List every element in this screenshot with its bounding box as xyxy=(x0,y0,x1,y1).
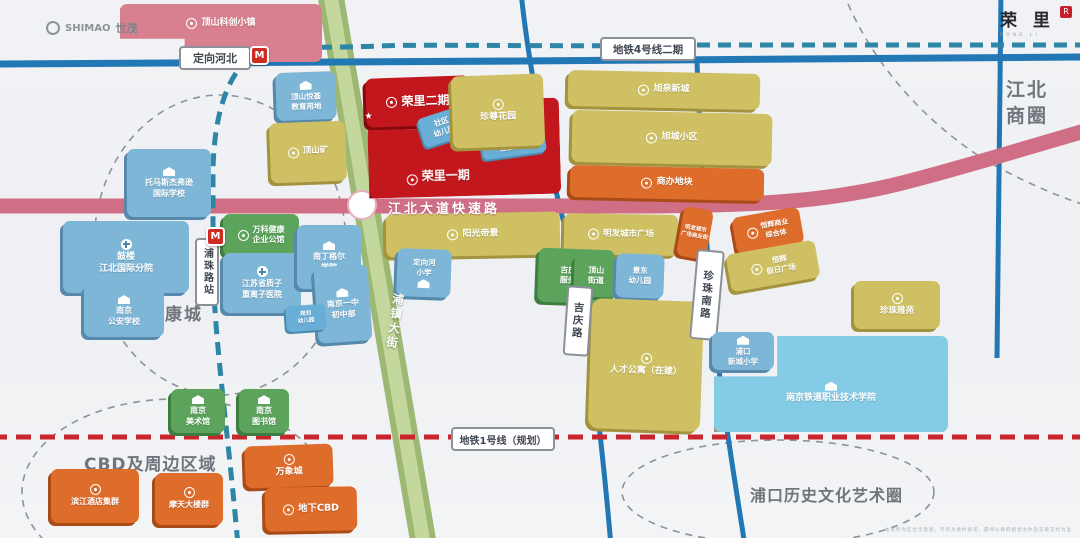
block-label: 明发城市 广场商业街 xyxy=(680,224,710,243)
block-xincheng: 旭泉新城 xyxy=(568,70,761,110)
block-label: 滨江酒店集群 xyxy=(71,497,119,507)
block-gulou-hospital-branch: 鼓楼 江北国际分院 xyxy=(63,221,189,293)
block-label: 南京 图书馆 xyxy=(252,406,276,427)
school-icon xyxy=(737,336,749,345)
block-label: 人才公寓（在建） xyxy=(610,364,682,378)
block-jingdong-kindergarten: 景东 幼儿园 xyxy=(615,253,665,299)
ring-icon xyxy=(588,228,599,239)
block-label: 景东 幼儿园 xyxy=(628,266,651,286)
block-label: 旭泉新城 xyxy=(653,84,689,96)
block-label: 定向河 小学 xyxy=(413,257,436,277)
ring-icon xyxy=(283,504,294,515)
block-label: 顶山悦荟 教育用地 xyxy=(291,91,322,112)
block-label: 恒辉 假日广场 xyxy=(764,252,797,276)
block-label: 顶山科创小镇 xyxy=(201,18,255,30)
hospital-icon xyxy=(121,239,132,250)
school-icon xyxy=(323,241,335,250)
ring-icon xyxy=(186,18,197,29)
metro-logo-icon: M xyxy=(250,46,269,65)
block-thomas-jefferson-school: 托马斯杰弗逊 国际学校 xyxy=(127,149,211,217)
block-pukou-xincheng-primary: 浦口 新城小学 xyxy=(712,332,774,370)
block-label: 明发城市广场 xyxy=(603,229,654,241)
east-road-line xyxy=(997,0,1001,358)
ring-icon xyxy=(386,97,397,108)
hospital-icon xyxy=(257,266,268,277)
school-icon xyxy=(163,167,175,176)
label-metro-line4: 地铁4号线二期 xyxy=(600,37,696,61)
block-label: 南京一中 初中部 xyxy=(327,298,360,321)
block-mixc: 万象城 xyxy=(244,443,333,488)
group-logo-icon xyxy=(46,21,60,35)
block-dingshan-mine: 顶山矿 xyxy=(269,121,347,184)
ring-icon xyxy=(746,227,759,240)
block-zhenzhu-yayuan: 珍珠雅苑 xyxy=(854,281,940,329)
block-library: 南京 图书馆 xyxy=(239,389,289,433)
ring-icon xyxy=(90,484,101,495)
metro-logo-icon: M xyxy=(206,227,225,246)
block-label: 南京铁道职业技术学院 xyxy=(786,393,876,405)
block-vanke-health-mansion: 万科健康 企业公馆 xyxy=(223,214,299,256)
block-label: 旭城小区 xyxy=(661,132,697,144)
block-label: 南京 美术馆 xyxy=(186,406,210,427)
disclaimer-text: 本资料为区位示意图，不作为要约承诺，最终以政府规划文件及实际交付为准 xyxy=(885,527,1072,533)
ring-icon xyxy=(283,453,294,464)
label-metro-line1: 地铁1号线（规划） xyxy=(451,427,555,451)
area-art-circle: 浦口历史文化艺术圈 xyxy=(750,482,903,506)
location-map: SHIMAO 世茂 荣 里 R RONG LI 健康城 江北 商圈 CBD及周边… xyxy=(0,0,1080,538)
school-icon xyxy=(825,382,837,391)
school-icon xyxy=(118,295,130,304)
block-zhenzun-garden: 珍尊花园 xyxy=(451,73,545,148)
block-label: 鼓楼 江北国际分院 xyxy=(99,252,153,275)
ring-icon xyxy=(238,230,249,241)
school-icon xyxy=(258,395,270,404)
area-jiangbei: 江北 商圈 xyxy=(1006,78,1048,129)
block-police-academy: 南京 公安学校 xyxy=(84,285,164,337)
block-label: 摩天大楼群 xyxy=(169,500,209,510)
river-line xyxy=(0,57,1080,64)
block-label: 南京 公安学校 xyxy=(108,306,140,327)
block-commercial-plot: 商办地块 xyxy=(570,165,765,201)
block-label: 荣里一期 xyxy=(422,168,470,185)
block-riverside-hotels: 滨江酒店集群 xyxy=(51,469,139,523)
block-label: 顶山矿 xyxy=(303,146,329,158)
label-jiangbei-ave: 江北大道快速路 xyxy=(388,198,500,217)
block-label: 商办地块 xyxy=(656,177,692,189)
project-logo-sub: RONG LI xyxy=(1000,33,1072,38)
block-label: 托马斯杰弗逊 国际学校 xyxy=(145,178,193,199)
ring-icon xyxy=(892,293,903,304)
block-label: 珍珠雅苑 xyxy=(880,306,914,317)
block-underground-cbd: 地下CBD xyxy=(265,486,358,532)
ring-icon xyxy=(492,98,503,109)
block-label: 地下CBD xyxy=(298,502,339,515)
shimao-logo-en: SHIMAO xyxy=(65,23,110,34)
developer-logos: SHIMAO 世茂 xyxy=(46,20,137,36)
star-icon: ★ xyxy=(364,112,372,124)
ring-icon xyxy=(288,147,299,158)
school-icon xyxy=(192,395,204,404)
block-label: 阳光帝景 xyxy=(462,228,498,240)
block-planned-kindergarten: 规划 幼儿园 xyxy=(285,304,327,333)
ring-icon xyxy=(646,132,657,143)
ring-icon xyxy=(407,174,418,185)
block-label: 荣里二期 xyxy=(401,93,450,110)
block-skyscrapers: 摩天大楼群 xyxy=(155,473,223,525)
station-dingxianghebei: 定向河北 xyxy=(179,46,251,70)
ring-icon xyxy=(447,229,458,240)
project-logo-cn: 荣 里 xyxy=(1000,6,1055,31)
block-label: 万科健康 企业公馆 xyxy=(253,225,285,246)
ring-icon xyxy=(641,352,652,363)
label-jiqing-road: 吉庆路 xyxy=(563,285,594,357)
block-label: 规划 幼儿园 xyxy=(297,310,314,325)
project-seal-icon: R xyxy=(1060,6,1072,18)
block-dingshan-education-land: 顶山悦荟 教育用地 xyxy=(275,71,337,121)
ring-icon xyxy=(750,263,763,276)
block-label: 恒辉商业 综合体 xyxy=(760,218,791,241)
block-label: 浦口 新城小学 xyxy=(728,347,758,367)
block-xiaoqu: 旭城小区 xyxy=(571,110,772,166)
block-label: 珍尊花园 xyxy=(480,111,516,124)
block-proton-hospital: 江苏省质子 重离子医院 xyxy=(223,253,301,313)
block-dingxianghe-primary: 定向河 小学 xyxy=(396,248,452,298)
ring-icon xyxy=(638,84,649,95)
block-label: 顶山 街道 xyxy=(588,265,605,286)
block-label: 万象城 xyxy=(276,466,303,479)
school-icon xyxy=(299,81,311,90)
block-art-museum: 南京 美术馆 xyxy=(171,389,225,433)
block-talent-apartments: 人才公寓（在建） xyxy=(588,298,704,432)
ring-icon xyxy=(184,487,195,498)
project-logo: 荣 里 R RONG LI xyxy=(1000,6,1072,38)
school-icon xyxy=(336,288,349,298)
station-puzhulu: 浦珠路站 xyxy=(195,238,219,306)
shimao-logo-cn: 世茂 xyxy=(115,20,137,36)
ring-icon xyxy=(641,177,652,188)
school-icon xyxy=(417,279,429,288)
block-label: 江苏省质子 重离子医院 xyxy=(242,279,282,300)
